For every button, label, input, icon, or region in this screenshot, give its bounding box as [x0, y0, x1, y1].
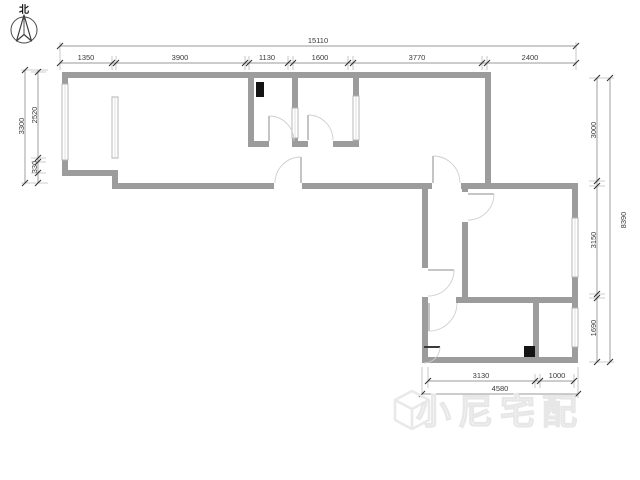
wall-segment [462, 222, 468, 303]
wall-segment [353, 78, 359, 96]
dim-top: 15110 1350 3900 1130 1600 3770 2400 [57, 36, 579, 70]
dim-label-right-total: 8390 [619, 212, 628, 229]
door-swing [308, 115, 333, 140]
dim-label: 330 [30, 161, 39, 174]
wall-segment [298, 141, 308, 147]
dim-label: 3000 [589, 122, 598, 139]
wall-segment [302, 183, 432, 189]
window [112, 97, 119, 158]
door-swing [275, 157, 301, 183]
dim-label-top-total: 15110 [308, 36, 328, 45]
dim-label: 3900 [172, 53, 189, 62]
wall-segment [248, 141, 269, 147]
wall-segment [112, 170, 118, 183]
wall-segment [456, 297, 578, 303]
dim-label: 1690 [589, 320, 598, 337]
wall-segment [485, 78, 491, 183]
door-swing [433, 156, 460, 183]
dim-label: 1600 [312, 53, 329, 62]
door-swing [428, 270, 454, 296]
window [572, 218, 579, 277]
dim-label-left-total: 3300 [17, 118, 26, 135]
window [572, 308, 579, 347]
wall-segment [62, 72, 491, 78]
wall-segment [422, 357, 578, 363]
dim-label: 3770 [409, 53, 426, 62]
dim-label: 2400 [522, 53, 539, 62]
flue-icon [256, 82, 264, 97]
compass-label: 北 [19, 3, 29, 16]
dim-left: 3300 2520 330 [17, 67, 48, 186]
dim-label: 3130 [473, 371, 490, 380]
watermark-text: 小尼宅配 [416, 392, 584, 432]
wall-segment [422, 189, 428, 268]
dim-label-bottom-total: 4580 [492, 384, 509, 393]
door-swing [468, 194, 494, 220]
dim-label: 1350 [78, 53, 95, 62]
watermark: 小尼宅配 [395, 391, 584, 432]
wall-segment [572, 189, 578, 218]
wall-segment [112, 183, 274, 189]
windows [62, 84, 579, 347]
dim-label: 2520 [30, 107, 39, 124]
exterior-walls [62, 72, 578, 363]
flue-icon [524, 346, 535, 357]
wall-segment [572, 277, 578, 308]
wall-segment [62, 170, 118, 176]
doors [269, 115, 494, 363]
window [353, 96, 360, 140]
wall-segment [248, 78, 254, 147]
floor-plan-canvas: 15110 1350 3900 1130 1600 3770 2400 3300… [0, 0, 640, 480]
dim-label: 1130 [259, 53, 275, 62]
wall-segment [353, 140, 359, 147]
wall-segment [292, 78, 298, 108]
wall-segment [422, 297, 428, 363]
door-swing [429, 303, 457, 331]
dim-right: 8390 3000 3150 1690 [589, 75, 628, 365]
north-compass-icon: 北 [11, 3, 37, 43]
dim-label: 3150 [589, 232, 598, 249]
dim-label: 1000 [549, 371, 566, 380]
wall-segment [462, 189, 468, 192]
window [62, 84, 69, 160]
door-swing [269, 116, 294, 141]
wall-segment [461, 183, 578, 189]
wall-segment [292, 138, 298, 147]
floor-plan-page: 15110 1350 3900 1130 1600 3770 2400 3300… [0, 0, 640, 480]
